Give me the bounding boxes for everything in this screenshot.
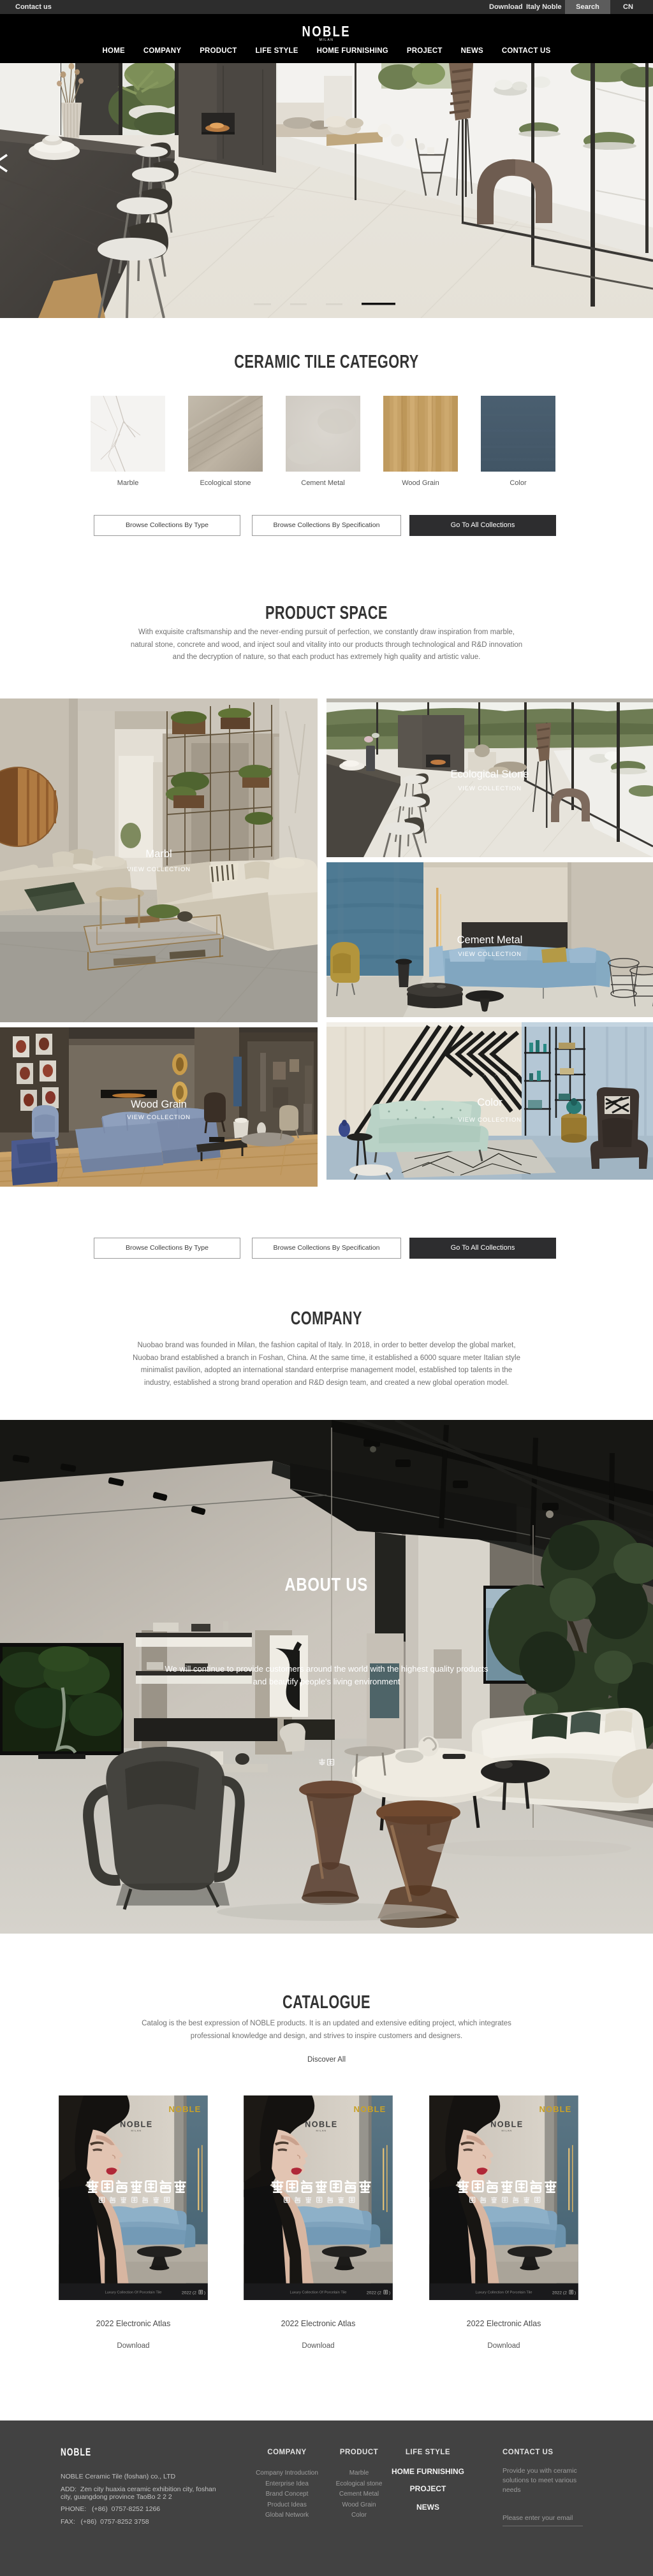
svg-text:NOBLE: NOBLE [120, 2120, 152, 2129]
svg-text:MILAN: MILAN [502, 2129, 513, 2132]
svg-text:Luxury Collection Of Porcelain: Luxury Collection Of Porcelain Tile [475, 2290, 532, 2294]
svg-text:MILAN: MILAN [131, 2129, 142, 2132]
svg-text:Luxury Collection Of Porcelain: Luxury Collection Of Porcelain Tile [290, 2290, 346, 2294]
svg-text:): ) [575, 2290, 576, 2295]
svg-text:NOBLE: NOBLE [539, 2104, 571, 2114]
svg-text:MILAN: MILAN [316, 2129, 327, 2132]
svg-text:NOBLE: NOBLE [168, 2104, 201, 2114]
svg-text:): ) [389, 2290, 390, 2295]
svg-text:2022 (2: 2022 (2 [552, 2290, 567, 2295]
svg-text:NOBLE: NOBLE [353, 2104, 386, 2114]
svg-text:NOBLE: NOBLE [305, 2120, 337, 2129]
svg-text:2022 (2: 2022 (2 [182, 2290, 196, 2295]
svg-text:NOBLE: NOBLE [490, 2120, 523, 2129]
svg-text:): ) [204, 2290, 205, 2295]
svg-text:Luxury Collection Of Porcelain: Luxury Collection Of Porcelain Tile [105, 2290, 161, 2294]
svg-text:2022 (2: 2022 (2 [367, 2290, 381, 2295]
